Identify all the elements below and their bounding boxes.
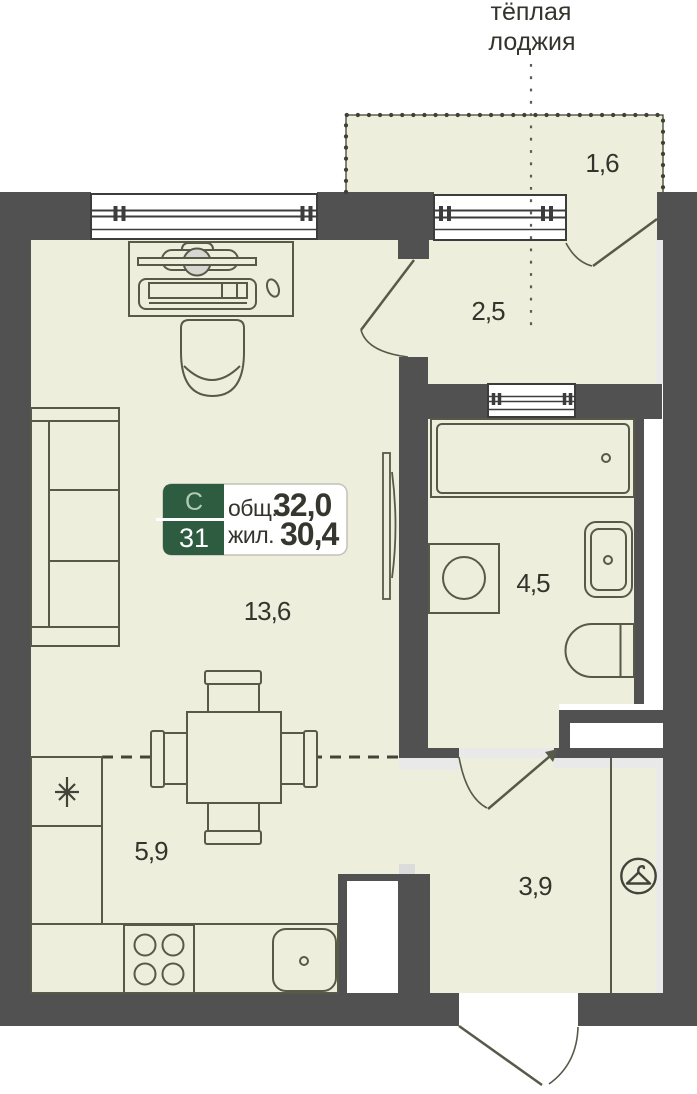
svg-text:2,5: 2,5 (471, 296, 505, 326)
svg-text:13,6: 13,6 (244, 596, 291, 626)
svg-text:жил.: жил. (228, 522, 274, 548)
svg-text:тёплая: тёплая (491, 0, 572, 26)
svg-text:4,5: 4,5 (516, 568, 550, 598)
svg-text:1,6: 1,6 (585, 148, 619, 178)
svg-text:С: С (185, 488, 203, 516)
svg-text:31: 31 (179, 523, 209, 553)
svg-text:лоджия: лоджия (488, 28, 575, 56)
svg-text:3,9: 3,9 (518, 871, 552, 901)
svg-text:5,9: 5,9 (134, 836, 168, 866)
svg-text:общ.: общ. (228, 495, 277, 521)
svg-text:30,4: 30,4 (280, 516, 339, 552)
